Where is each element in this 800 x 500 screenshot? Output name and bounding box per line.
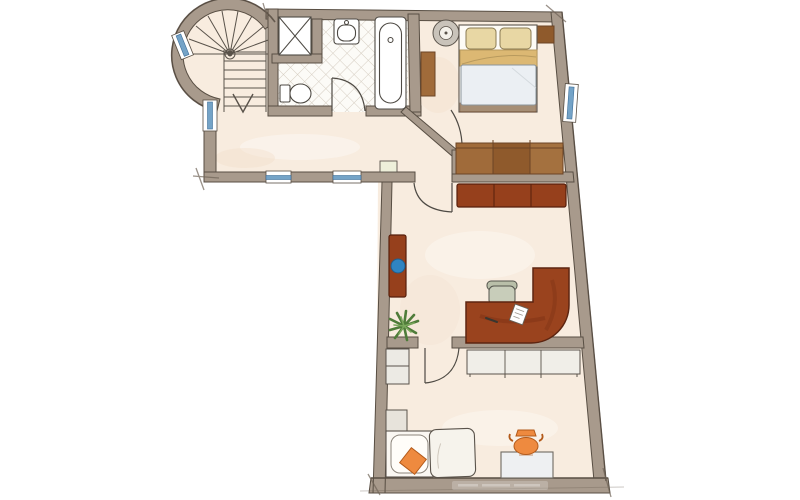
nightstand-left (421, 52, 435, 96)
study-south-wall-left (387, 337, 418, 348)
side-table (501, 452, 553, 478)
hallway (380, 161, 397, 172)
toilet-tank (280, 85, 290, 102)
duvet (461, 65, 536, 105)
blanket (460, 50, 537, 66)
floor-plan (0, 0, 800, 500)
shower-niche-wall-v (312, 19, 322, 56)
nightstand-right (536, 26, 554, 43)
counter-row (467, 350, 580, 378)
hallway-south-wall (204, 172, 415, 182)
floor-blotch (400, 275, 460, 345)
cabinet-left (386, 349, 409, 384)
round-side-table (433, 20, 459, 46)
hallway-south-window-1 (266, 171, 291, 183)
single-bed (386, 431, 433, 477)
pillow-left (466, 28, 496, 49)
toilet-bowl (290, 84, 311, 103)
drain (388, 38, 393, 43)
faucet (345, 21, 349, 25)
bedroom-east-window (563, 84, 579, 123)
watermark (452, 481, 548, 490)
toilet (280, 84, 311, 103)
floor-plan-drawing (0, 0, 800, 500)
cabinet-grey (386, 410, 407, 432)
hallway-south-window-2 (333, 171, 361, 183)
sink (334, 19, 359, 44)
wardrobe (456, 140, 563, 174)
sideboard (457, 184, 566, 207)
pillow-right (500, 28, 531, 49)
double-bed (459, 25, 537, 112)
day-bed (429, 428, 476, 478)
bathtub (375, 17, 406, 109)
blue-cushion (391, 259, 405, 273)
radiator (380, 161, 397, 172)
bathroom-east-wall (408, 14, 421, 112)
bench-sofa (389, 235, 406, 297)
shower-tray (279, 17, 311, 55)
floor-blotch (425, 231, 535, 279)
hallway-west-window (203, 100, 217, 131)
bathroom-south-wall-left (268, 106, 332, 116)
newel-dot (228, 52, 232, 56)
floor-blotch (215, 148, 275, 168)
